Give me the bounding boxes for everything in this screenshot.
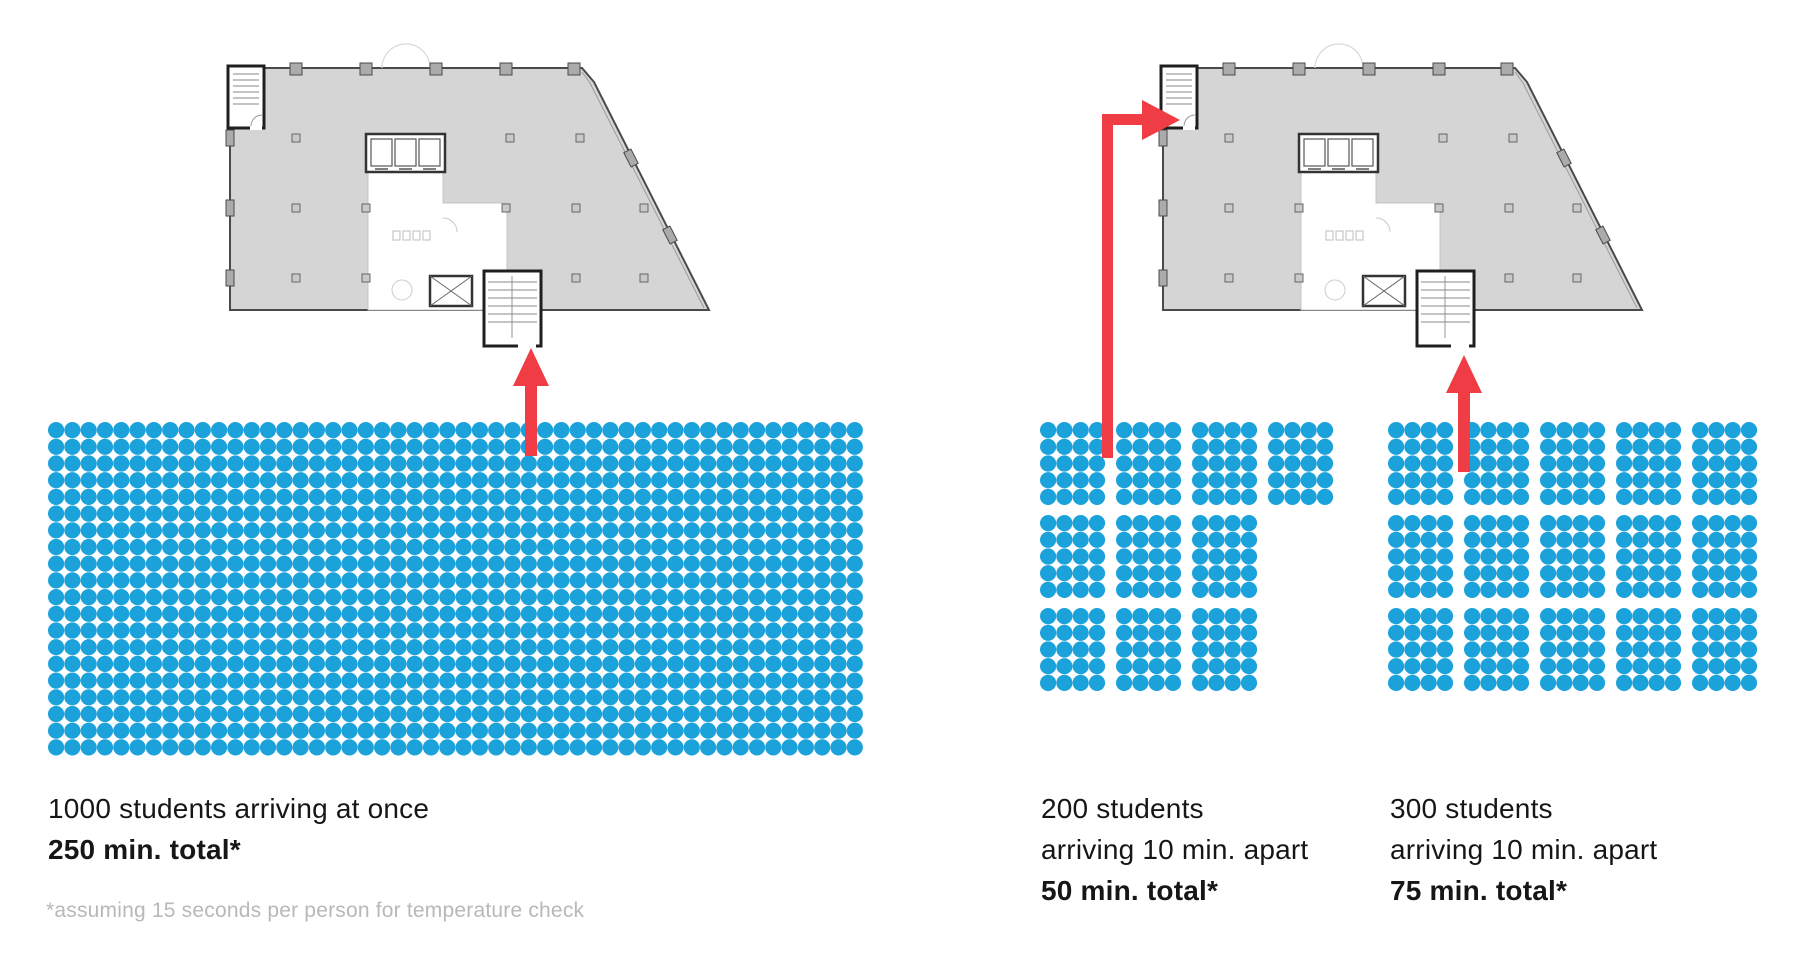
student-dot [488,539,504,555]
student-dot [1192,455,1208,471]
student-dot [1632,565,1648,581]
student-dot [1388,532,1404,548]
student-dot [667,589,683,605]
student-dot [521,706,537,722]
student-dot [1513,608,1529,624]
student-dot [325,622,341,638]
student-dot [488,489,504,505]
student-dot [1480,641,1496,657]
student-dot [456,723,472,739]
student-dot [602,706,618,722]
student-dot [227,706,243,722]
student-dot [1708,641,1724,657]
student-dot [374,673,390,689]
student-dot [1165,489,1181,505]
student-dot [586,439,602,455]
student-dot [1421,515,1437,531]
student-dot [651,505,667,521]
student-dot [1208,608,1224,624]
student-dot [1225,472,1241,488]
student-dot [1480,675,1496,691]
student-dot [521,673,537,689]
student-dot [1149,422,1165,438]
student-dot [244,706,260,722]
student-dot [472,522,488,538]
student-dot [195,639,211,655]
student-dot [1616,658,1632,674]
student-dot [830,522,846,538]
student-dot [733,556,749,572]
student-dot [456,622,472,638]
student-dot [651,472,667,488]
student-dot [374,455,390,471]
student-dot [1437,422,1453,438]
student-dot [619,455,635,471]
student-dot [81,439,97,455]
student-dot [1149,455,1165,471]
student-dot [293,689,309,705]
student-dot [765,522,781,538]
student-dot [1040,439,1056,455]
student-dot [537,739,553,755]
student-dot [472,739,488,755]
student-dot [1149,641,1165,657]
student-dot [1692,641,1708,657]
student-dot [1497,489,1513,505]
student-dot [1692,625,1708,641]
student-dot [390,556,406,572]
student-dot [619,639,635,655]
student-dot [358,723,374,739]
student-dot [1388,548,1404,564]
student-dot [1649,532,1665,548]
student-dot [782,723,798,739]
student-dot [1208,548,1224,564]
student-dot [407,522,423,538]
student-dot [1165,641,1181,657]
student-dot [814,739,830,755]
student-dot [1149,675,1165,691]
student-dot [847,572,863,588]
floor-plan-right [1159,44,1642,349]
student-dot [81,673,97,689]
student-dot [847,472,863,488]
student-dot [1725,625,1741,641]
student-dot [619,739,635,755]
student-dot [521,539,537,555]
student-dot [1241,641,1257,657]
student-dot [81,656,97,672]
student-dot [749,606,765,622]
student-dot [1741,422,1757,438]
student-dot [1632,608,1648,624]
student-dot [260,472,276,488]
student-dot [553,422,569,438]
student-dot [146,639,162,655]
student-dot [1132,625,1148,641]
student-dot [293,723,309,739]
student-dot [504,522,520,538]
student-dot [472,505,488,521]
student-dot [1556,472,1572,488]
student-dot [1404,439,1420,455]
student-dot [651,539,667,555]
scenario-200-line2: arriving 10 min. apart [1041,829,1308,870]
student-dot [227,422,243,438]
student-dot [81,522,97,538]
student-dot [586,656,602,672]
student-dot [537,589,553,605]
student-dot [1665,455,1681,471]
student-dot [1225,455,1241,471]
student-dot [260,606,276,622]
student-dot [635,472,651,488]
student-dot [1388,515,1404,531]
student-dot [423,622,439,638]
student-dot [814,606,830,622]
scenario-200-line1: 200 students [1041,788,1308,829]
student-dot [586,673,602,689]
student-dot [814,455,830,471]
student-dot [1040,641,1056,657]
student-dot [1225,439,1241,455]
student-dot [1437,608,1453,624]
student-dot [211,455,227,471]
student-dot [1317,472,1333,488]
student-dot [146,422,162,438]
student-dot [1649,439,1665,455]
student-dot [1616,515,1632,531]
student-dot [814,656,830,672]
student-dot [162,673,178,689]
student-dot [521,489,537,505]
student-dot [211,639,227,655]
student-dot [1404,548,1420,564]
student-dot [537,539,553,555]
student-dot [521,589,537,605]
student-dot [733,739,749,755]
student-dot [1556,641,1572,657]
student-dot [260,739,276,755]
student-dot [667,639,683,655]
student-dot [211,739,227,755]
student-dot [195,622,211,638]
student-dot [651,522,667,538]
student-dot [211,606,227,622]
student-dot [130,606,146,622]
student-dot [1073,455,1089,471]
student-dot [716,673,732,689]
student-dot [227,455,243,471]
student-dot [1388,439,1404,455]
student-dot [749,539,765,555]
student-dot [195,689,211,705]
student-dot [1192,472,1208,488]
student-dot [1692,422,1708,438]
student-dot [553,556,569,572]
student-dot [765,539,781,555]
student-dot [602,739,618,755]
student-dot [358,622,374,638]
student-dot [586,556,602,572]
student-dot [700,505,716,521]
student-dot [407,723,423,739]
student-dot [293,622,309,638]
student-dot [537,422,553,438]
student-dot [64,439,80,455]
student-dot [1649,565,1665,581]
student-dot [1616,455,1632,471]
student-dot [1421,608,1437,624]
student-dot [847,589,863,605]
student-dot [244,656,260,672]
student-dot [553,689,569,705]
student-dot [456,656,472,672]
student-dot [1421,489,1437,505]
student-dot [847,556,863,572]
student-dot [162,489,178,505]
student-dot [570,505,586,521]
student-dot [325,723,341,739]
student-dot [749,622,765,638]
student-dot [1241,439,1257,455]
student-dot [1589,675,1605,691]
student-dot [423,689,439,705]
student-dot [684,439,700,455]
student-dot [1056,489,1072,505]
student-dot [733,505,749,521]
student-dot [1708,608,1724,624]
student-dot [260,656,276,672]
student-dot [1421,422,1437,438]
student-dot [651,656,667,672]
student-dot [374,489,390,505]
student-dot [570,539,586,555]
student-dot [1556,532,1572,548]
student-dot [407,622,423,638]
student-dot [553,606,569,622]
student-dot [1589,489,1605,505]
student-dot [1040,548,1056,564]
student-dot [407,472,423,488]
student-dot [1116,472,1132,488]
student-dot [244,489,260,505]
student-dot [1388,472,1404,488]
student-dot [1573,439,1589,455]
student-dot [472,439,488,455]
student-dot [1116,658,1132,674]
student-dot [1513,641,1529,657]
student-dot [488,739,504,755]
student-dot [211,439,227,455]
student-dot [341,422,357,438]
student-dot [1649,675,1665,691]
student-dot [341,689,357,705]
student-dot [472,673,488,689]
student-dot [798,505,814,521]
student-dot [472,472,488,488]
student-dot [651,439,667,455]
student-dot [97,689,113,705]
student-dot [521,723,537,739]
student-dot [1388,658,1404,674]
student-dot [521,455,537,471]
student-dot [1192,532,1208,548]
student-dot [1741,675,1757,691]
student-dot [1589,625,1605,641]
student-dot [749,439,765,455]
student-dot [276,572,292,588]
student-dot [586,455,602,471]
student-dot [1056,532,1072,548]
student-dot [113,656,129,672]
student-dot [1284,489,1300,505]
student-dot [733,606,749,622]
student-dot [64,689,80,705]
student-dot [749,723,765,739]
student-dot [830,505,846,521]
student-dot [847,522,863,538]
student-dot [1589,472,1605,488]
student-dot [276,455,292,471]
student-dot [260,539,276,555]
student-dot [1741,515,1757,531]
student-dot [439,639,455,655]
student-dot [1225,608,1241,624]
scenario-200-label: 200 students arriving 10 min. apart 50 m… [1041,788,1308,911]
student-dot [716,706,732,722]
student-dot [667,606,683,622]
student-dot [325,606,341,622]
student-dot [1632,515,1648,531]
student-dot [1692,532,1708,548]
student-dot [798,706,814,722]
student-dot [309,556,325,572]
student-dot [260,706,276,722]
student-dot [113,723,129,739]
student-dot [456,706,472,722]
student-dot [1725,641,1741,657]
student-dot [782,589,798,605]
student-dot [716,723,732,739]
student-dot [407,673,423,689]
student-dot [1573,472,1589,488]
student-dot [374,422,390,438]
student-dot [439,723,455,739]
student-dot [1556,489,1572,505]
student-dot [423,706,439,722]
student-dot [423,639,439,655]
student-dot [782,656,798,672]
student-dot [1388,675,1404,691]
student-dot [504,723,520,739]
student-dot [130,673,146,689]
student-dot [1089,641,1105,657]
student-dot [390,673,406,689]
student-dot [798,656,814,672]
student-dot [456,739,472,755]
student-dot [1632,532,1648,548]
student-dot [1421,472,1437,488]
student-dot [765,639,781,655]
student-dot [1632,472,1648,488]
student-dot [1616,532,1632,548]
student-dot [635,522,651,538]
student-dot [798,455,814,471]
student-dot [276,439,292,455]
student-dot [227,439,243,455]
student-dot [472,606,488,622]
student-dot [602,439,618,455]
student-dot [97,439,113,455]
student-dot [586,572,602,588]
student-dot [830,673,846,689]
student-dot [1208,455,1224,471]
scenario-300-label: 300 students arriving 10 min. apart 75 m… [1390,788,1657,911]
student-dot [1404,641,1420,657]
student-dot [309,422,325,438]
student-dot [619,505,635,521]
student-dot [651,572,667,588]
student-dot [1165,625,1181,641]
student-dot [1665,439,1681,455]
scenario-1000-label: 1000 students arriving at once 250 min. … [48,788,429,870]
student-dot [423,556,439,572]
student-dot [847,673,863,689]
student-dot [553,539,569,555]
student-dot [1149,582,1165,598]
student-dot [1404,455,1420,471]
student-dot [325,455,341,471]
student-dot [374,622,390,638]
student-dot [700,439,716,455]
student-dot [276,589,292,605]
student-dot [341,572,357,588]
student-dot [195,522,211,538]
student-dot [1241,422,1257,438]
student-dot [113,706,129,722]
student-dot [814,522,830,538]
student-dot [276,656,292,672]
student-dot [1708,625,1724,641]
student-dot [1208,565,1224,581]
student-dot [684,689,700,705]
student-dot [1132,489,1148,505]
student-dot [716,489,732,505]
student-dot [1388,565,1404,581]
student-dot [1692,439,1708,455]
student-dot [1497,582,1513,598]
student-dot [81,639,97,655]
student-dot [553,439,569,455]
student-dot [667,439,683,455]
student-dot [700,556,716,572]
student-dot [814,422,830,438]
student-dot [1573,608,1589,624]
student-dot [309,505,325,521]
student-dot [1573,675,1589,691]
student-dot [1497,608,1513,624]
student-dot [1132,641,1148,657]
student-dot [782,489,798,505]
student-dot [733,673,749,689]
student-dot [1464,565,1480,581]
student-dot [1284,422,1300,438]
student-dot [358,489,374,505]
student-dot [227,606,243,622]
student-dot [1480,439,1496,455]
student-dot [390,606,406,622]
